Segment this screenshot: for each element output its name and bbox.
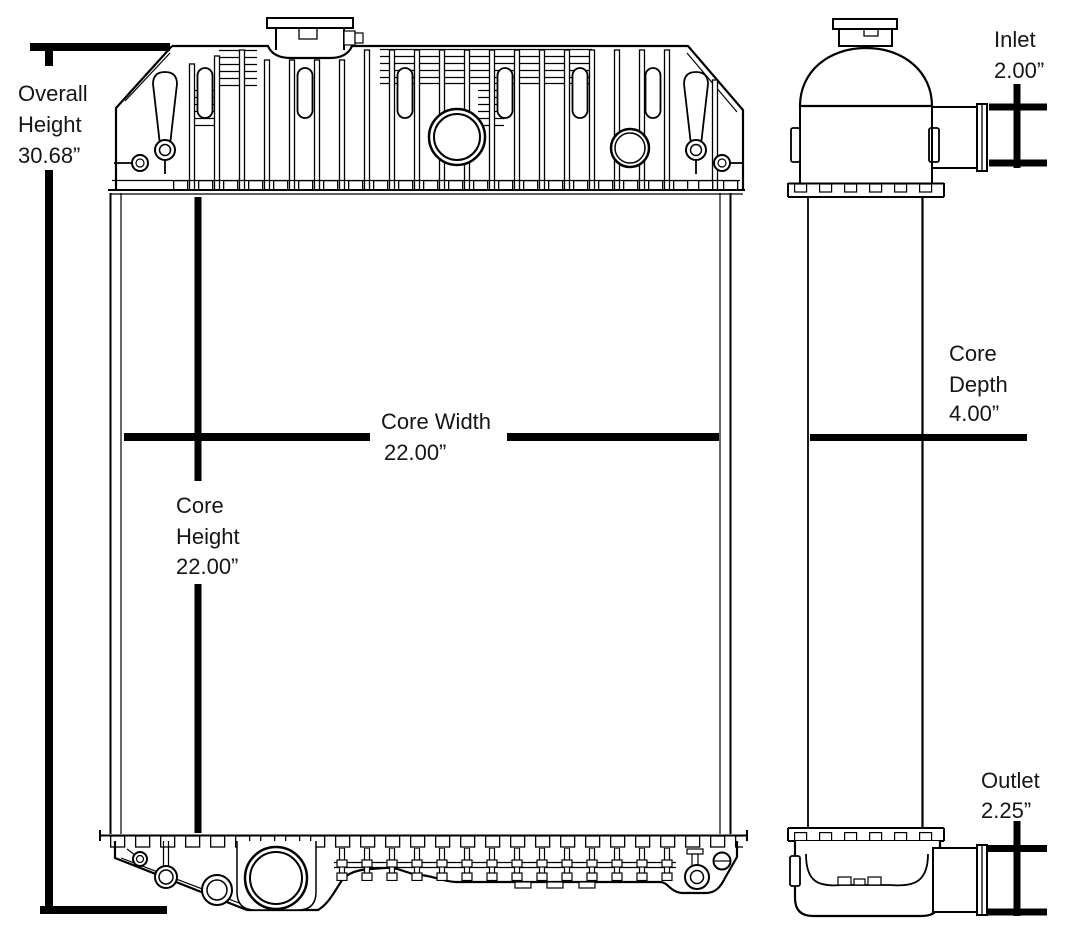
side-tank-body [800,106,932,184]
side-cap-plate [833,19,897,29]
filler-cap-plate [267,18,353,28]
top-tank-teardrop-left [114,72,177,174]
outlet-line [1014,821,1021,916]
core-width-line-right [507,433,719,441]
core-height-label: Core [176,493,224,518]
overall-height-label: Overall [18,81,88,106]
inlet-value: 2.00” [994,58,1044,83]
side-bottom-bracket [790,856,800,886]
overall-height-value: 30.68” [18,143,80,168]
overflow-nub-tip [355,33,363,43]
side-top-flange-crenellation [794,184,938,193]
dim-core-height: Core Height 22.00” [176,197,240,833]
front-bottom-tank [100,830,747,910]
core-height-line-top [195,197,202,481]
inlet-label: Inlet [994,27,1036,52]
core-depth-label: Core [949,341,997,366]
side-bottom-tank [788,828,987,916]
top-flange-crenellation [173,180,743,190]
outlet-value: 2.25” [981,798,1031,823]
core-depth-line [810,434,1027,441]
dim-core-depth: Core Depth 4.00” [810,341,1027,441]
secondary-neck-circle [611,129,649,167]
dim-core-width: Core Width 22.00” [124,409,719,465]
core-depth-value: 4.00” [949,401,999,426]
filler-neck-circle [429,109,485,165]
side-bottom-flange-crenellation [794,832,938,841]
side-tank-dome [800,48,932,106]
overall-height-bottom-bar [40,906,167,914]
bottom-flange-crenellation [110,836,743,848]
dim-overall-height: Overall Height 30.68” [18,43,170,914]
overall-height-top-bar [30,43,170,51]
side-cap-body [839,29,892,46]
outlet-pipe [933,848,978,912]
svg-text:Depth: Depth [949,372,1008,397]
side-core [808,197,923,828]
svg-text:Height: Height [18,112,82,137]
bottom-tank-fins [330,848,676,881]
core-width-line-left [124,433,370,441]
overall-height-line [45,170,53,911]
core-height-line-bottom [195,584,202,833]
side-top-tank [788,19,987,197]
drawing-canvas: Overall Height 30.68” Core Width 22.00” … [0,0,1070,945]
core-width-value: 22.00” [384,440,446,465]
bottom-bolt-small [133,852,147,866]
inlet-line [1014,84,1021,168]
overflow-nub [344,31,355,45]
svg-text:Height: Height [176,524,240,549]
filler-cap-notch [299,28,317,39]
core-height-value: 22.00” [176,554,238,579]
drain-plug [685,849,731,889]
core-width-label: Core Width [381,409,491,434]
dim-inlet: Inlet 2.00” [989,27,1047,168]
side-view [788,19,987,916]
outlet-port-circle [245,847,307,909]
dim-outlet: Outlet 2.25” [981,768,1047,916]
side-bracket-left [791,128,800,162]
radiator-dimension-drawing: Overall Height 30.68” Core Width 22.00” … [0,0,1070,945]
outlet-label: Outlet [981,768,1040,793]
filler-cap [267,18,363,50]
front-top-tank [108,18,745,194]
